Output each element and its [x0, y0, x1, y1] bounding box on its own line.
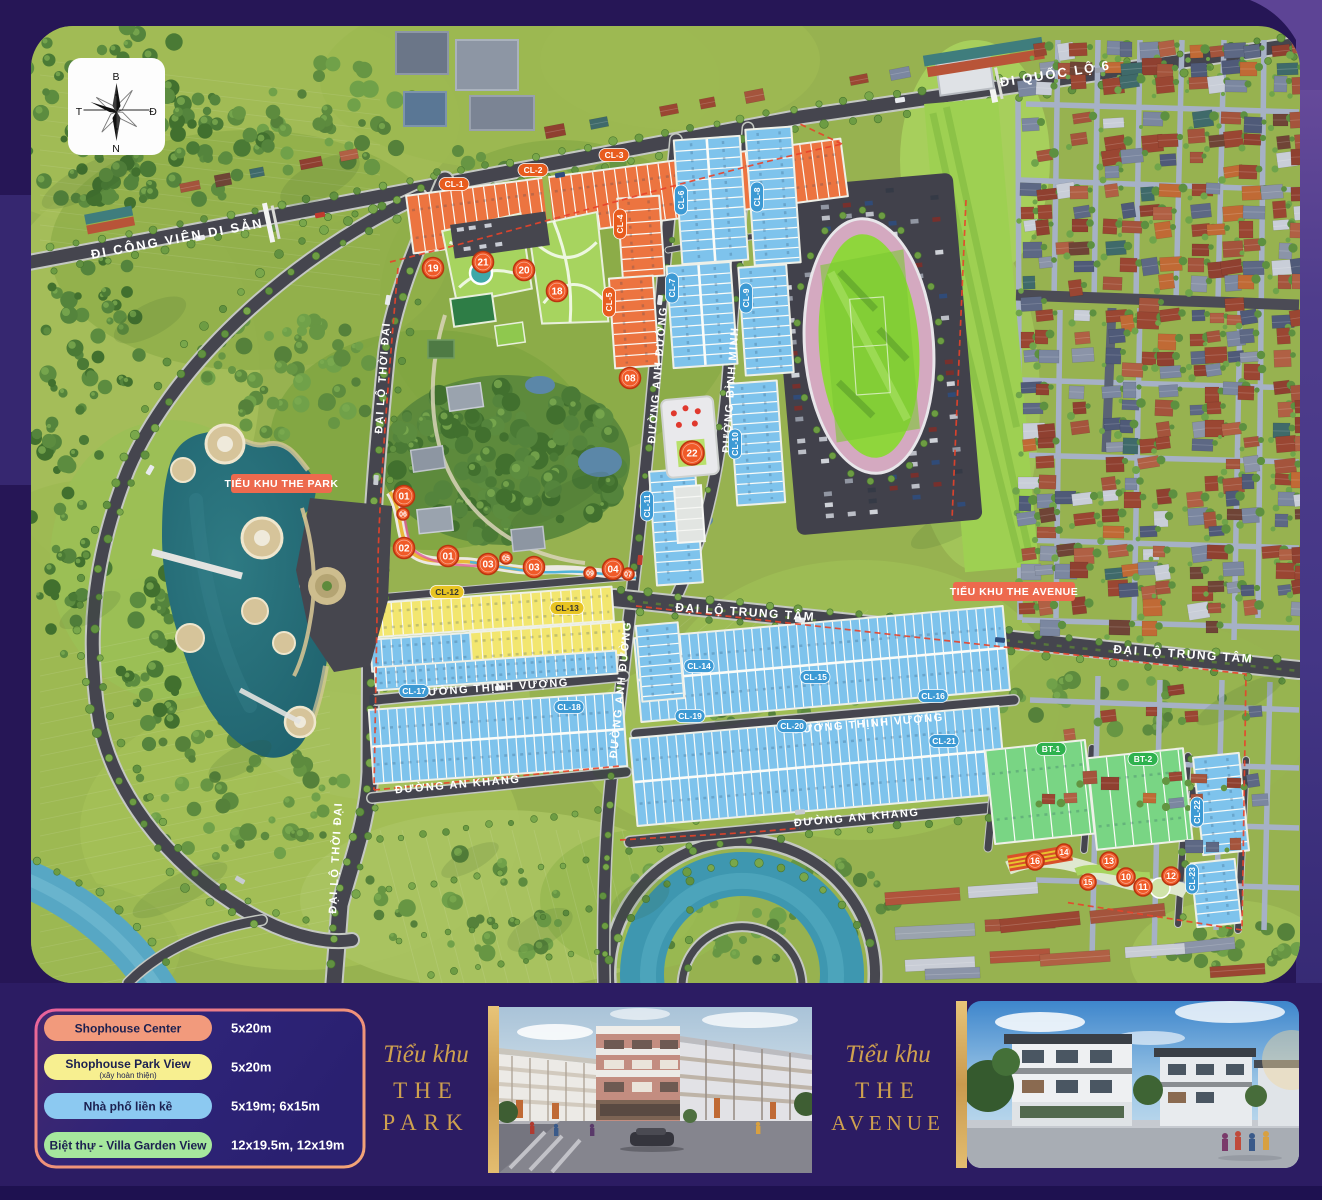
svg-text:CL-15: CL-15 — [803, 672, 827, 682]
svg-text:CL-22: CL-22 — [1192, 800, 1202, 824]
svg-text:Shophouse Park View: Shophouse Park View — [65, 1057, 191, 1071]
svg-text:TIỂU KHU THE AVENUE: TIỂU KHU THE AVENUE — [950, 585, 1079, 598]
svg-text:Tiểu khu: Tiểu khu — [845, 1041, 930, 1068]
svg-text:5x19m; 6x15m: 5x19m; 6x15m — [231, 1099, 320, 1114]
svg-text:03: 03 — [482, 560, 494, 571]
svg-text:CL-23: CL-23 — [1187, 867, 1197, 891]
svg-text:(xây hoàn thiện): (xây hoàn thiện) — [99, 1071, 157, 1080]
svg-text:10: 10 — [1121, 872, 1131, 882]
svg-text:CL-11: CL-11 — [642, 494, 652, 517]
svg-text:CL-3: CL-3 — [605, 150, 624, 160]
svg-text:CL-21: CL-21 — [932, 736, 956, 746]
svg-text:CL-7: CL-7 — [667, 278, 677, 297]
svg-text:Đ: Đ — [149, 106, 157, 118]
svg-text:Nhà phố liền kề: Nhà phố liền kề — [84, 1100, 173, 1114]
svg-text:09: 09 — [586, 571, 594, 578]
svg-text:05: 05 — [502, 556, 510, 563]
svg-text:19: 19 — [427, 264, 439, 275]
svg-text:B: B — [112, 71, 119, 83]
svg-text:CL-20: CL-20 — [780, 721, 804, 731]
svg-text:N: N — [112, 143, 120, 155]
svg-text:CL-12: CL-12 — [435, 587, 459, 597]
svg-text:04: 04 — [607, 565, 619, 576]
svg-text:5x20m: 5x20m — [231, 1021, 271, 1036]
svg-text:BT-2: BT-2 — [1134, 754, 1153, 764]
svg-text:01: 01 — [398, 492, 410, 503]
svg-text:02: 02 — [398, 544, 410, 555]
svg-text:21: 21 — [477, 258, 489, 269]
svg-text:01: 01 — [442, 552, 454, 563]
svg-text:14: 14 — [1060, 848, 1069, 857]
svg-text:BT-1: BT-1 — [1042, 744, 1061, 754]
svg-text:13: 13 — [1104, 856, 1114, 866]
svg-text:CL-13: CL-13 — [555, 603, 579, 613]
svg-text:CL-19: CL-19 — [678, 711, 702, 721]
svg-text:T: T — [76, 106, 83, 118]
svg-text:16: 16 — [1030, 856, 1040, 866]
svg-text:CL-17: CL-17 — [402, 686, 426, 696]
svg-text:08: 08 — [624, 374, 636, 385]
svg-text:CL-14: CL-14 — [687, 661, 711, 671]
svg-text:15: 15 — [1084, 878, 1093, 887]
svg-text:THE: THE — [855, 1078, 921, 1103]
svg-text:TIỂU KHU THE PARK: TIỂU KHU THE PARK — [225, 477, 339, 490]
svg-text:CL-4: CL-4 — [615, 214, 625, 233]
svg-text:06: 06 — [399, 512, 407, 519]
svg-text:20: 20 — [518, 266, 530, 277]
svg-text:12x19.5m, 12x19m: 12x19.5m, 12x19m — [231, 1138, 344, 1153]
svg-text:03: 03 — [528, 563, 540, 574]
svg-text:5x20m: 5x20m — [231, 1060, 271, 1075]
svg-text:CL-2: CL-2 — [524, 165, 543, 175]
svg-text:CL-10: CL-10 — [730, 432, 740, 456]
svg-text:CL-5: CL-5 — [604, 292, 614, 311]
svg-text:18: 18 — [551, 287, 563, 298]
svg-text:Shophouse Center: Shophouse Center — [75, 1022, 182, 1036]
svg-text:12: 12 — [1166, 871, 1176, 881]
svg-text:CL-16: CL-16 — [921, 691, 945, 701]
svg-text:PARK: PARK — [382, 1110, 469, 1135]
svg-text:07: 07 — [624, 572, 632, 579]
svg-text:CL-1: CL-1 — [445, 179, 464, 189]
svg-text:22: 22 — [686, 449, 698, 460]
svg-text:AVENUE: AVENUE — [831, 1111, 945, 1135]
svg-text:11: 11 — [1138, 882, 1148, 892]
svg-text:CL-9: CL-9 — [741, 288, 751, 307]
svg-text:CL-6: CL-6 — [676, 190, 686, 209]
svg-text:CL-8: CL-8 — [752, 187, 762, 206]
svg-text:Biệt thự - Villa Garden View: Biệt thự - Villa Garden View — [50, 1139, 208, 1153]
svg-text:Tiểu khu: Tiểu khu — [383, 1041, 468, 1068]
svg-text:THE: THE — [393, 1078, 459, 1103]
svg-text:CL-18: CL-18 — [557, 702, 581, 712]
